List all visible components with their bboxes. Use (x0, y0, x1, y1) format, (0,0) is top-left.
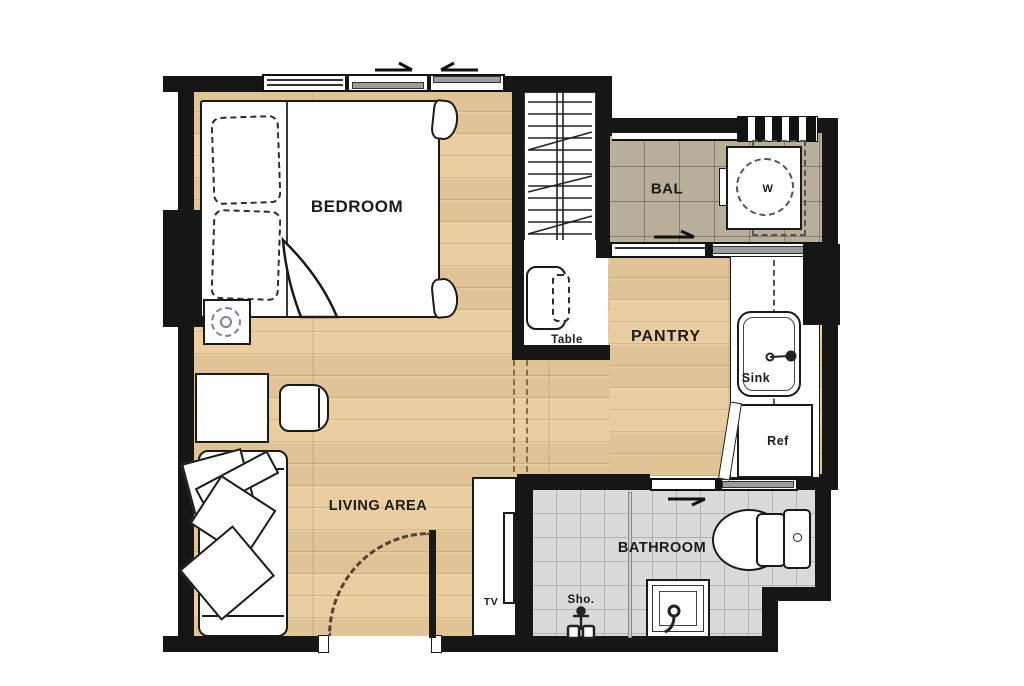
bed-blanket-fold (283, 240, 337, 317)
pantry-label: PANTRY (631, 328, 701, 346)
balcony-door-slide-arrow-icon (654, 231, 694, 237)
tv-label: TV (484, 596, 498, 608)
shower-label: Sho. (568, 594, 595, 606)
washer-label: W (763, 183, 774, 195)
fridge-label: Ref (767, 434, 789, 448)
sink-label: Sink (742, 371, 770, 385)
table-label: Table (551, 334, 583, 346)
sink-faucet-icon (767, 352, 796, 361)
bedroom-label: BEDROOM (311, 197, 403, 217)
bathroom-label: BATHROOM (618, 540, 706, 556)
window-slide-arrow-icon (375, 63, 412, 70)
floor-plan: BEDROOM BAL W Table PANTRY Sink Ref LIVI… (0, 0, 1024, 686)
plan-annotations (0, 0, 1024, 686)
window-slide-arrow-icon (441, 63, 478, 70)
balcony-label: BAL (651, 181, 683, 198)
shower-icon (568, 608, 594, 639)
bathroom-door-slide-arrow-icon (668, 499, 705, 505)
basin-faucet-icon (665, 606, 679, 632)
living-area-label: LIVING AREA (329, 498, 427, 514)
